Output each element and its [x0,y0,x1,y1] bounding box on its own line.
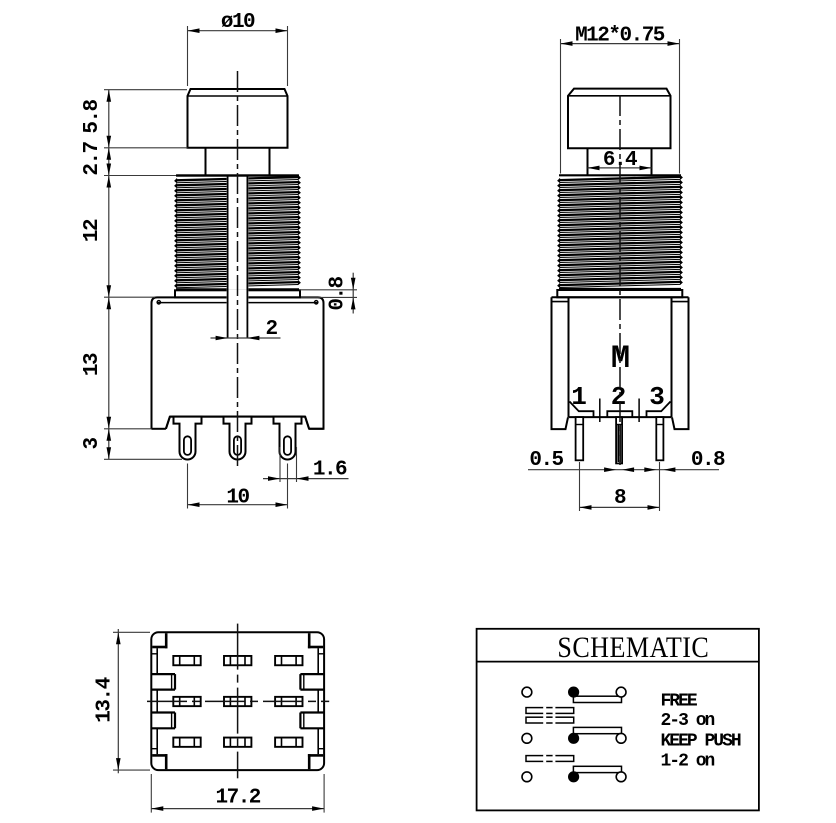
svg-text:KEEP PUSH: KEEP PUSH [661,732,741,752]
svg-text:0.5: 0.5 [529,449,563,472]
svg-text:2: 2 [611,382,627,412]
svg-text:1.6: 1.6 [313,459,347,482]
svg-text:13: 13 [81,353,104,376]
svg-text:SCHEMATIC: SCHEMATIC [557,631,709,664]
svg-text:12: 12 [81,219,104,242]
svg-text:8: 8 [614,487,626,510]
svg-text:2: 2 [265,318,277,341]
svg-text:0.8: 0.8 [691,449,725,472]
svg-text:0.8: 0.8 [327,276,350,310]
svg-text:13.4: 13.4 [94,677,117,722]
svg-text:3: 3 [649,382,665,412]
svg-text:2.7: 2.7 [81,141,104,175]
svg-text:1: 1 [571,382,587,412]
svg-text:5.8: 5.8 [81,99,104,133]
svg-text:3: 3 [81,438,104,450]
svg-text:2-3 on: 2-3 on [661,711,715,731]
svg-text:1-2 on: 1-2 on [661,751,715,771]
svg-text:FREE: FREE [661,692,698,712]
svg-text:10: 10 [226,487,249,510]
svg-text:17.2: 17.2 [215,787,260,810]
